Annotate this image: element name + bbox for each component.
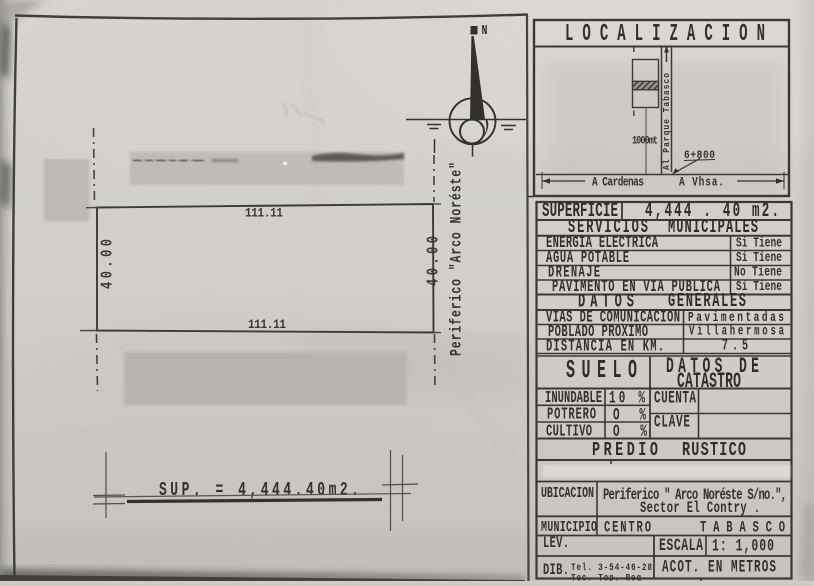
svg-text:N: N	[482, 23, 488, 39]
svg-text:CUENTA: CUENTA	[654, 389, 696, 408]
svg-text:111.11: 111.11	[245, 206, 283, 221]
svg-text:DISTANCIA EN KM.: DISTANCIA EN KM.	[546, 337, 664, 356]
svg-text:ACOT. EN METROS: ACOT. EN METROS	[662, 558, 776, 577]
svg-text:CLAVE: CLAVE	[654, 413, 690, 432]
svg-text:A Vhsa.: A Vhsa.	[679, 175, 724, 190]
svg-text:ESCALA: ESCALA	[659, 537, 703, 556]
svg-text:A Cardenas: A Cardenas	[592, 175, 644, 190]
svg-text:Tec. Top. Reg: Tec. Top. Reg	[571, 573, 641, 581]
svg-text:Sector El Contry .: Sector El Contry .	[640, 499, 760, 516]
svg-text:1000mt: 1000mt	[632, 135, 658, 147]
svg-text:DIB.: DIB.	[543, 562, 569, 580]
svg-text:MUNICIPIO: MUNICIPIO	[541, 518, 597, 536]
svg-text:111.11: 111.11	[248, 317, 286, 332]
svg-text:LEV.: LEV.	[543, 535, 569, 553]
svg-text:RUSTICO: RUSTICO	[682, 440, 746, 462]
svg-text:1: 1,000: 1: 1,000	[712, 538, 774, 557]
svg-text:UBICACION: UBICACION	[541, 484, 594, 502]
svg-text:Periferico "Arco Noréste": Periferico "Arco Noréste"	[448, 162, 466, 356]
svg-text:Al Parque Tabasco: Al Parque Tabasco	[662, 73, 673, 170]
svg-text:7.5: 7.5	[722, 338, 748, 356]
